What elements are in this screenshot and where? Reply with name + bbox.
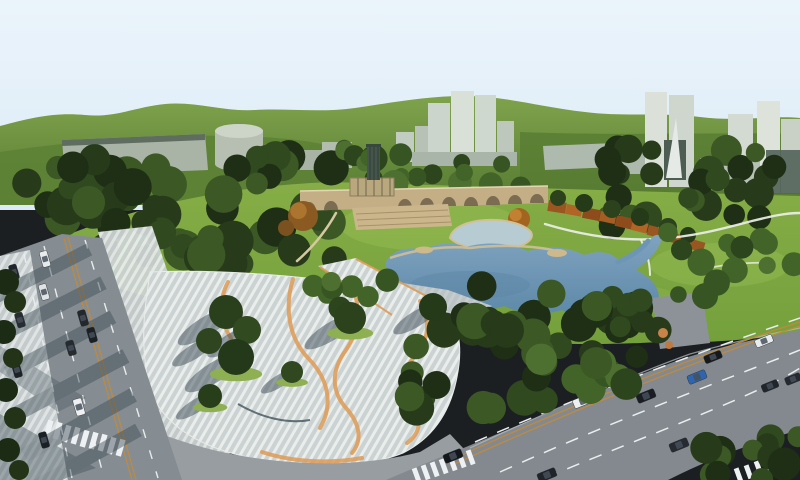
tree: [389, 143, 412, 166]
tree: [690, 432, 722, 464]
tree: [403, 334, 429, 360]
tree: [631, 208, 649, 226]
tree-highlight: [510, 209, 522, 221]
tree: [493, 156, 510, 173]
tree: [3, 348, 23, 368]
sand-island: [547, 249, 567, 257]
tree: [603, 200, 621, 218]
tree: [358, 286, 379, 307]
building-cylinder-top: [215, 124, 263, 138]
building-tower: [475, 95, 496, 157]
tree: [334, 302, 366, 334]
tree: [580, 347, 612, 379]
tree: [278, 234, 311, 267]
tree: [278, 220, 294, 236]
landmark-tower-cap: [366, 144, 381, 147]
tree: [582, 291, 612, 321]
tree: [704, 269, 730, 295]
tree: [4, 291, 26, 313]
tree: [198, 384, 222, 408]
tree: [670, 286, 687, 303]
tree: [205, 175, 243, 213]
tree: [4, 407, 26, 429]
tree: [187, 236, 225, 274]
tree: [706, 167, 730, 191]
tree: [611, 368, 643, 400]
park-masterplan-svg: [0, 0, 800, 480]
pavilion: [350, 178, 394, 196]
sand-island: [415, 247, 433, 254]
tree: [12, 169, 41, 198]
tree: [72, 186, 105, 219]
tree: [746, 143, 765, 162]
tree: [218, 339, 254, 375]
tree: [322, 272, 341, 291]
tree: [246, 173, 268, 195]
tree: [642, 141, 661, 160]
tree: [629, 289, 652, 312]
tree: [550, 190, 566, 206]
tree: [537, 280, 565, 308]
tree: [467, 391, 500, 424]
tree: [759, 257, 776, 274]
park-aerial-render: [0, 0, 800, 480]
tree: [196, 328, 222, 354]
tree: [467, 271, 497, 301]
tree: [671, 239, 692, 260]
tree: [408, 168, 427, 187]
tree: [665, 341, 673, 349]
tree: [658, 328, 668, 338]
tree: [598, 158, 626, 186]
building-tower: [428, 103, 450, 160]
building-tower: [451, 91, 474, 158]
tree: [626, 346, 648, 368]
tree: [57, 152, 89, 184]
tree: [395, 382, 425, 412]
tree: [610, 316, 631, 337]
tree: [419, 293, 447, 321]
tree: [575, 194, 593, 212]
tree: [302, 275, 324, 297]
tree: [743, 178, 774, 209]
tree: [762, 155, 786, 179]
tree: [114, 168, 152, 206]
tree: [678, 188, 698, 208]
tree: [376, 269, 399, 292]
tree: [526, 344, 557, 375]
tree: [731, 236, 754, 259]
tree: [456, 164, 473, 181]
tree: [723, 204, 745, 226]
tree: [640, 162, 663, 185]
tree: [9, 460, 29, 480]
tree: [281, 361, 303, 383]
tree: [658, 223, 677, 242]
tree: [489, 313, 524, 348]
tree-highlight: [290, 203, 307, 220]
